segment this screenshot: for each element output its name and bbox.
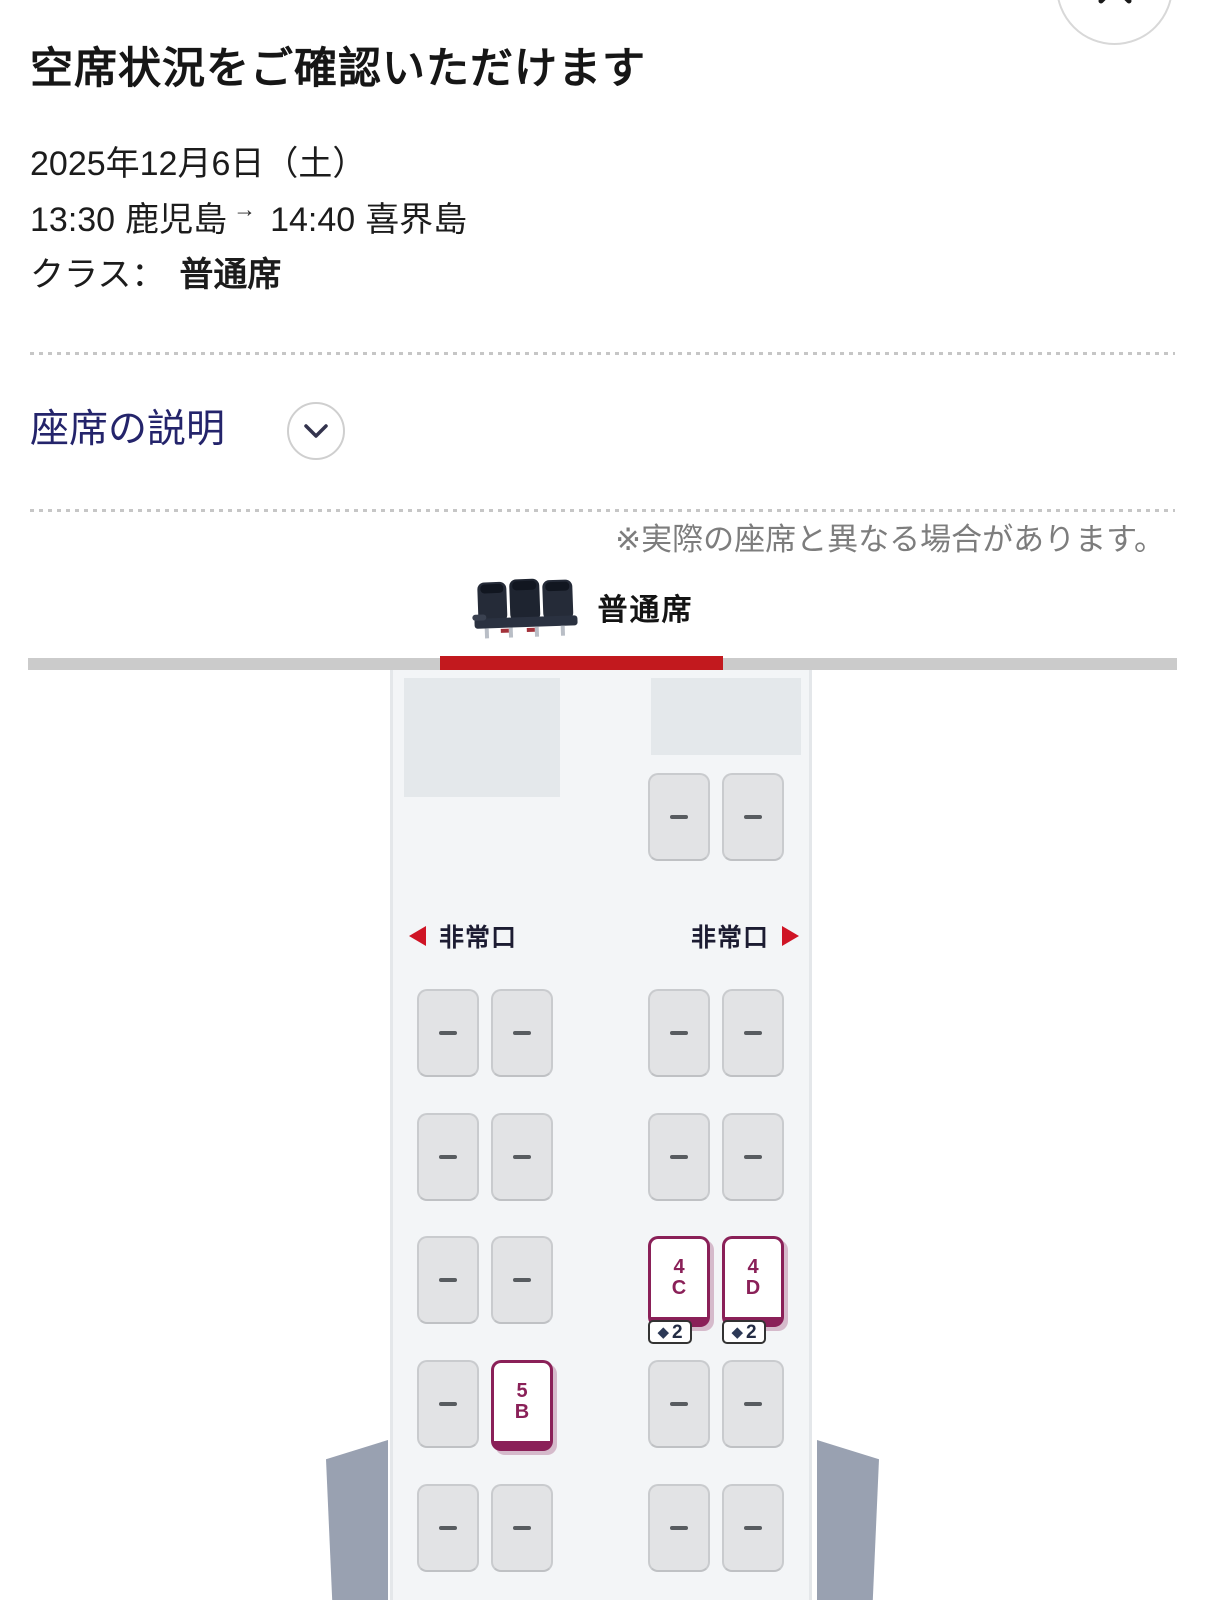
seat-5A-unavailable (417, 1360, 479, 1448)
seat-letter: C (672, 1278, 686, 1299)
seat-2D-unavailable (722, 989, 784, 1077)
exit-row-label-left: 非常口 (409, 918, 517, 954)
seat-4C-available[interactable]: 4 C (648, 1236, 710, 1327)
divider (30, 509, 1175, 512)
seat-5B-available[interactable]: 5 B (491, 1360, 553, 1451)
exit-arrow-right-icon (782, 926, 799, 946)
disclaimer-note: ※実際の座席と異なる場合があります。 (615, 514, 1165, 559)
departure-time: 13:30 (30, 201, 115, 239)
seat-number: 4 (747, 1257, 758, 1278)
seat-6C-unavailable (648, 1484, 710, 1572)
arrival-city: 喜界島 (365, 201, 467, 239)
badge-count: 2 (672, 1323, 683, 1342)
triple-seat-icon (470, 573, 582, 641)
seat-2C-unavailable (648, 989, 710, 1077)
seat-6D-unavailable (722, 1484, 784, 1572)
unavailable-dash-icon (513, 1031, 531, 1035)
seat-3B-unavailable (491, 1113, 553, 1201)
seat-2A-unavailable (417, 989, 479, 1077)
route-arrow-icon: → (233, 196, 256, 222)
flight-date: 2025年12月6日（土） (30, 136, 366, 185)
galley-block-left (404, 678, 560, 797)
unavailable-dash-icon (513, 1278, 531, 1282)
class-value: 普通席 (179, 256, 281, 294)
seat-3C-unavailable (648, 1113, 710, 1201)
seat-5C-unavailable (648, 1360, 710, 1448)
seat-letter: B (515, 1402, 529, 1423)
aircraft-cabin: 非常口 非常口 4 C 4 D ◆ 2 ◆ 2 5 B (390, 670, 812, 1600)
arrival-time: 14:40 (270, 201, 355, 239)
chevron-down-icon (303, 423, 329, 439)
flight-route: 13:30鹿児島→14:40喜界島 (30, 192, 467, 241)
close-icon (1087, 0, 1143, 15)
unavailable-dash-icon (744, 1402, 762, 1406)
seat-letter: D (746, 1278, 760, 1299)
seat-6B-unavailable (491, 1484, 553, 1572)
unavailable-dash-icon (744, 1155, 762, 1159)
seat-6A-unavailable (417, 1484, 479, 1572)
page-title: 空席状況をご確認いただけます (30, 34, 646, 96)
seat-number: 5 (516, 1381, 527, 1402)
unavailable-dash-icon (513, 1526, 531, 1530)
unavailable-dash-icon (439, 1031, 457, 1035)
divider (30, 352, 1175, 355)
seat-legend-label: 座席の説明 (30, 398, 225, 454)
seat-1D-unavailable (722, 773, 784, 861)
exit-label: 非常口 (439, 918, 517, 954)
unavailable-dash-icon (670, 1402, 688, 1406)
unavailable-dash-icon (439, 1155, 457, 1159)
unavailable-dash-icon (439, 1278, 457, 1282)
exit-arrow-left-icon (409, 926, 426, 946)
seat-2B-unavailable (491, 989, 553, 1077)
unavailable-dash-icon (439, 1402, 457, 1406)
unavailable-dash-icon (744, 1031, 762, 1035)
left-wing (326, 1440, 388, 1600)
seat-4C-fare-badge: ◆ 2 (648, 1320, 692, 1344)
unavailable-dash-icon (670, 815, 688, 819)
unavailable-dash-icon (744, 815, 762, 819)
unavailable-dash-icon (744, 1526, 762, 1530)
unavailable-dash-icon (513, 1155, 531, 1159)
seat-1C-unavailable (648, 773, 710, 861)
seat-legend-expand-button[interactable] (287, 402, 345, 460)
seat-4D-fare-badge: ◆ 2 (722, 1320, 766, 1344)
seat-4A-unavailable (417, 1236, 479, 1324)
active-tab-indicator (440, 656, 723, 670)
diamond-icon: ◆ (657, 1325, 669, 1340)
diamond-icon: ◆ (731, 1325, 743, 1340)
class-line: クラス：普通席 (30, 247, 281, 296)
departure-city: 鹿児島 (125, 201, 227, 239)
exit-row-label-right: 非常口 (691, 918, 799, 954)
seat-4D-available[interactable]: 4 D (722, 1236, 784, 1327)
seat-3A-unavailable (417, 1113, 479, 1201)
class-label: クラス： (30, 256, 165, 294)
seat-3D-unavailable (722, 1113, 784, 1201)
right-wing (817, 1440, 879, 1600)
unavailable-dash-icon (439, 1526, 457, 1530)
seat-number: 4 (673, 1257, 684, 1278)
unavailable-dash-icon (670, 1526, 688, 1530)
badge-count: 2 (746, 1323, 757, 1342)
unavailable-dash-icon (670, 1155, 688, 1159)
tab-ordinary-seat[interactable]: 普通席 (440, 562, 723, 652)
exit-label: 非常口 (691, 918, 769, 954)
close-button[interactable] (1056, 0, 1173, 45)
galley-block-right (651, 678, 801, 755)
seat-4B-unavailable (491, 1236, 553, 1324)
seat-5D-unavailable (722, 1360, 784, 1448)
unavailable-dash-icon (670, 1031, 688, 1035)
tab-label: 普通席 (598, 585, 694, 629)
